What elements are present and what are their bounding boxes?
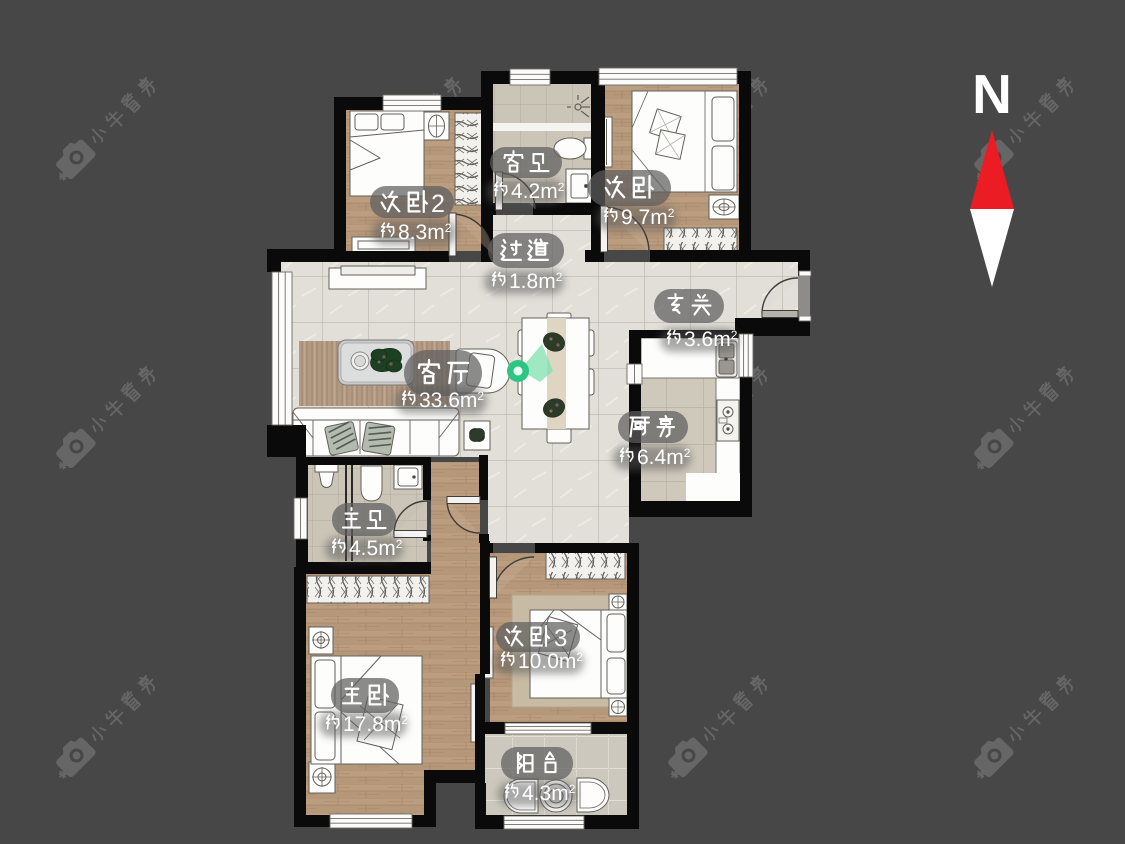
svg-text:2: 2 [431, 190, 445, 218]
svg-text:N: N [972, 63, 1012, 125]
svg-text:17.8m2: 17.8m2 [343, 713, 408, 736]
svg-text:10.0m2: 10.0m2 [518, 650, 583, 673]
svg-text:33.6m2: 33.6m2 [419, 389, 484, 412]
svg-text:4.5m2: 4.5m2 [349, 537, 403, 560]
svg-text:9.7m2: 9.7m2 [621, 206, 675, 229]
svg-text:3: 3 [554, 625, 567, 652]
svg-text:4.2m2: 4.2m2 [511, 180, 565, 203]
svg-text:6.4m2: 6.4m2 [637, 446, 691, 469]
svg-text:8.3m2: 8.3m2 [398, 221, 452, 244]
svg-text:1.8m2: 1.8m2 [509, 270, 563, 293]
svg-text:4.3m2: 4.3m2 [522, 782, 576, 805]
svg-text:3.6m2: 3.6m2 [684, 328, 738, 351]
